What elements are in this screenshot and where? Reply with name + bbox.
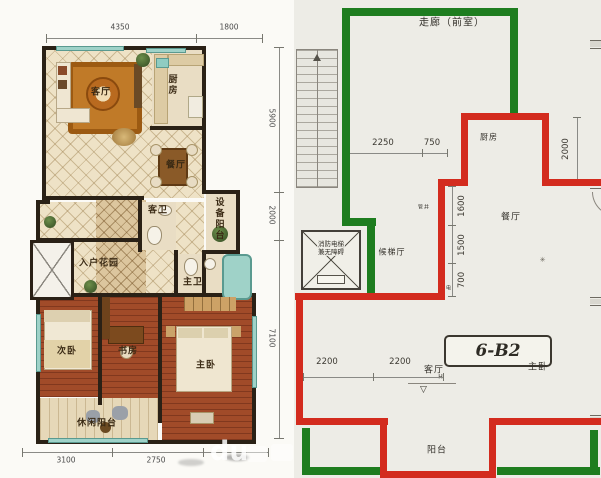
dimension-tick <box>196 34 197 43</box>
wardrobe <box>184 297 236 311</box>
screenshot-root: 4350180059002000710031002750 客厅厨房餐厅客卫设备阳… <box>0 0 601 478</box>
dim-label: 2000 <box>268 205 277 224</box>
green-marker-segment <box>302 467 387 475</box>
plan-line <box>590 48 601 49</box>
green-marker-segment <box>510 8 518 120</box>
desk <box>108 326 144 344</box>
dimension-tick <box>203 448 204 457</box>
chair <box>186 176 198 188</box>
dimension-tick <box>46 34 47 43</box>
dimension-line <box>279 47 280 438</box>
level-mark-triangle: ▽ <box>420 385 428 395</box>
dim-label: 2750 <box>146 456 165 465</box>
room-label: 厨房 <box>480 132 498 143</box>
dimension-tick <box>448 263 456 264</box>
sofa <box>56 108 90 123</box>
dimension-tick <box>262 34 263 43</box>
window-strip <box>252 316 257 388</box>
dimension-tick <box>274 47 284 48</box>
elevator-door-mark <box>317 275 345 284</box>
tv-console <box>134 64 142 108</box>
plant <box>44 216 56 228</box>
red-marker-segment <box>438 179 445 300</box>
wall-segment <box>158 293 162 423</box>
kitchen-counter <box>168 54 204 66</box>
pillow <box>204 328 228 338</box>
room-label: 客厅 <box>91 85 111 98</box>
room-label: 主卧 <box>196 358 216 371</box>
green-marker-segment <box>497 467 600 475</box>
wall-segment <box>150 126 206 130</box>
elevator-shaft <box>30 240 74 300</box>
red-marker-segment <box>542 179 601 186</box>
scribble-smudge <box>178 459 204 466</box>
elevator-label-line2: 兼无障碍 <box>318 248 344 256</box>
room-label: 入户花园 <box>79 256 119 269</box>
wall-segment <box>236 190 240 254</box>
wall-segment <box>174 250 178 296</box>
watermark-block <box>247 446 267 462</box>
plan-line <box>590 297 601 298</box>
staircase <box>296 49 338 188</box>
chair <box>150 176 162 188</box>
red-marker-segment <box>296 418 388 425</box>
door-swing-arc <box>592 192 601 216</box>
room-label: 客厅 <box>424 363 444 376</box>
dim-label: 2000 <box>561 138 571 160</box>
dimension-tick <box>448 225 456 226</box>
dimension-tick <box>274 438 284 439</box>
elevator-label-line1: 消防电梯 <box>318 240 344 248</box>
green-marker-segment <box>367 218 375 298</box>
level-mark-line <box>408 383 456 384</box>
sink <box>204 258 216 270</box>
pillow <box>178 328 202 338</box>
dimension-tick <box>268 448 269 457</box>
kitchen-sink <box>156 58 169 68</box>
red-marker-segment <box>489 423 496 478</box>
dimension-tick <box>274 192 284 193</box>
window-strip <box>48 438 148 443</box>
cushion <box>58 80 67 89</box>
wall-segment <box>202 150 206 194</box>
dimension-tick <box>448 296 456 297</box>
dimension-tick <box>448 186 456 187</box>
red-marker-segment <box>380 471 496 478</box>
room-label: 阳台 <box>427 443 447 456</box>
chair <box>150 144 162 156</box>
toilet <box>184 258 198 276</box>
watermark-block <box>271 444 293 461</box>
room-label: 餐厅 <box>501 210 521 223</box>
toilet <box>147 226 162 245</box>
wall-segment <box>42 196 144 200</box>
dimension-tick <box>422 149 423 157</box>
dimension-tick <box>303 373 304 381</box>
dimension-line <box>452 186 453 297</box>
dim-label: 700 <box>457 272 467 288</box>
dimension-tick <box>274 240 284 241</box>
plant <box>136 53 150 67</box>
dim-label: 1600 <box>457 195 467 217</box>
wall-fill <box>590 299 601 304</box>
dim-label: 2200 <box>316 357 338 367</box>
red-marker-segment <box>296 293 303 425</box>
dimension-line <box>577 117 578 186</box>
watermark-text: du <box>210 436 249 467</box>
window-strip <box>146 48 186 53</box>
dimension-line <box>345 153 448 154</box>
red-marker-segment <box>461 113 549 120</box>
dim-label: 2200 <box>389 357 411 367</box>
green-marker-segment <box>342 8 518 16</box>
green-marker-segment <box>590 430 598 475</box>
room-label: 主卫 <box>183 275 203 288</box>
room-label: 候梯厅 <box>379 247 406 258</box>
pouf <box>112 128 136 146</box>
dimension-tick <box>573 117 581 118</box>
dimension-tick <box>112 448 113 457</box>
dim-label: 750 <box>424 138 440 148</box>
red-marker-segment <box>542 113 549 186</box>
dimension-line <box>46 38 262 39</box>
plan-line <box>590 40 601 41</box>
room-label: 管井 <box>418 204 430 211</box>
wall-segment <box>36 200 50 204</box>
window-strip <box>56 46 124 51</box>
bathtub <box>222 254 252 300</box>
room-label: 书房 <box>118 344 138 357</box>
sparkle-mark: ✳ <box>540 256 547 264</box>
wall-segment <box>42 46 46 204</box>
chair <box>186 144 198 156</box>
bookshelf <box>102 297 110 339</box>
room-label: 客卫 <box>148 203 168 216</box>
left-rendered-floorplan: 4350180059002000710031002750 客厅厨房餐厅客卫设备阳… <box>0 0 294 478</box>
room-label: 餐厅 <box>166 158 186 171</box>
dim-label: 2250 <box>372 138 394 148</box>
red-marker-segment <box>295 293 445 300</box>
plan-line <box>590 305 601 306</box>
dim-label: 5900 <box>268 108 277 127</box>
fire-elevator-box: 消防电梯 兼无障碍 <box>301 230 361 290</box>
dimension-tick <box>22 448 23 457</box>
bench <box>190 412 214 424</box>
wall-segment <box>202 190 240 194</box>
red-marker-segment <box>461 113 468 186</box>
dim-label: 1800 <box>219 23 238 32</box>
wall-segment <box>138 198 142 252</box>
wall-segment <box>70 238 142 242</box>
red-marker-segment <box>489 418 601 425</box>
fridge <box>188 96 203 118</box>
dim-label: 4350 <box>110 23 129 32</box>
dim-label: 1500 <box>457 234 467 256</box>
plan-line <box>590 415 601 416</box>
unit-id-text: 6-B2 <box>475 341 520 361</box>
room-label: 次卧 <box>57 344 77 357</box>
cushion <box>58 66 67 75</box>
room-label: 厨房 <box>166 74 179 96</box>
dimension-tick <box>373 373 374 381</box>
dimension-tick <box>447 149 448 157</box>
dim-label: 3100 <box>56 456 75 465</box>
plant <box>84 280 97 293</box>
wall-fill <box>590 41 601 47</box>
green-marker-segment <box>342 8 350 226</box>
pillows <box>44 310 90 322</box>
stair-direction-arrow <box>313 54 321 61</box>
room-label: 主卧 <box>528 360 548 373</box>
nightstand <box>232 326 241 337</box>
room-label: 休闲阳台 <box>77 416 117 429</box>
plan-line <box>590 188 601 189</box>
window-strip <box>36 314 41 372</box>
room-label: 设备阳台 <box>213 197 226 241</box>
nightstand <box>166 326 175 337</box>
dim-label: 7100 <box>268 328 277 347</box>
red-marker-segment <box>380 418 387 478</box>
